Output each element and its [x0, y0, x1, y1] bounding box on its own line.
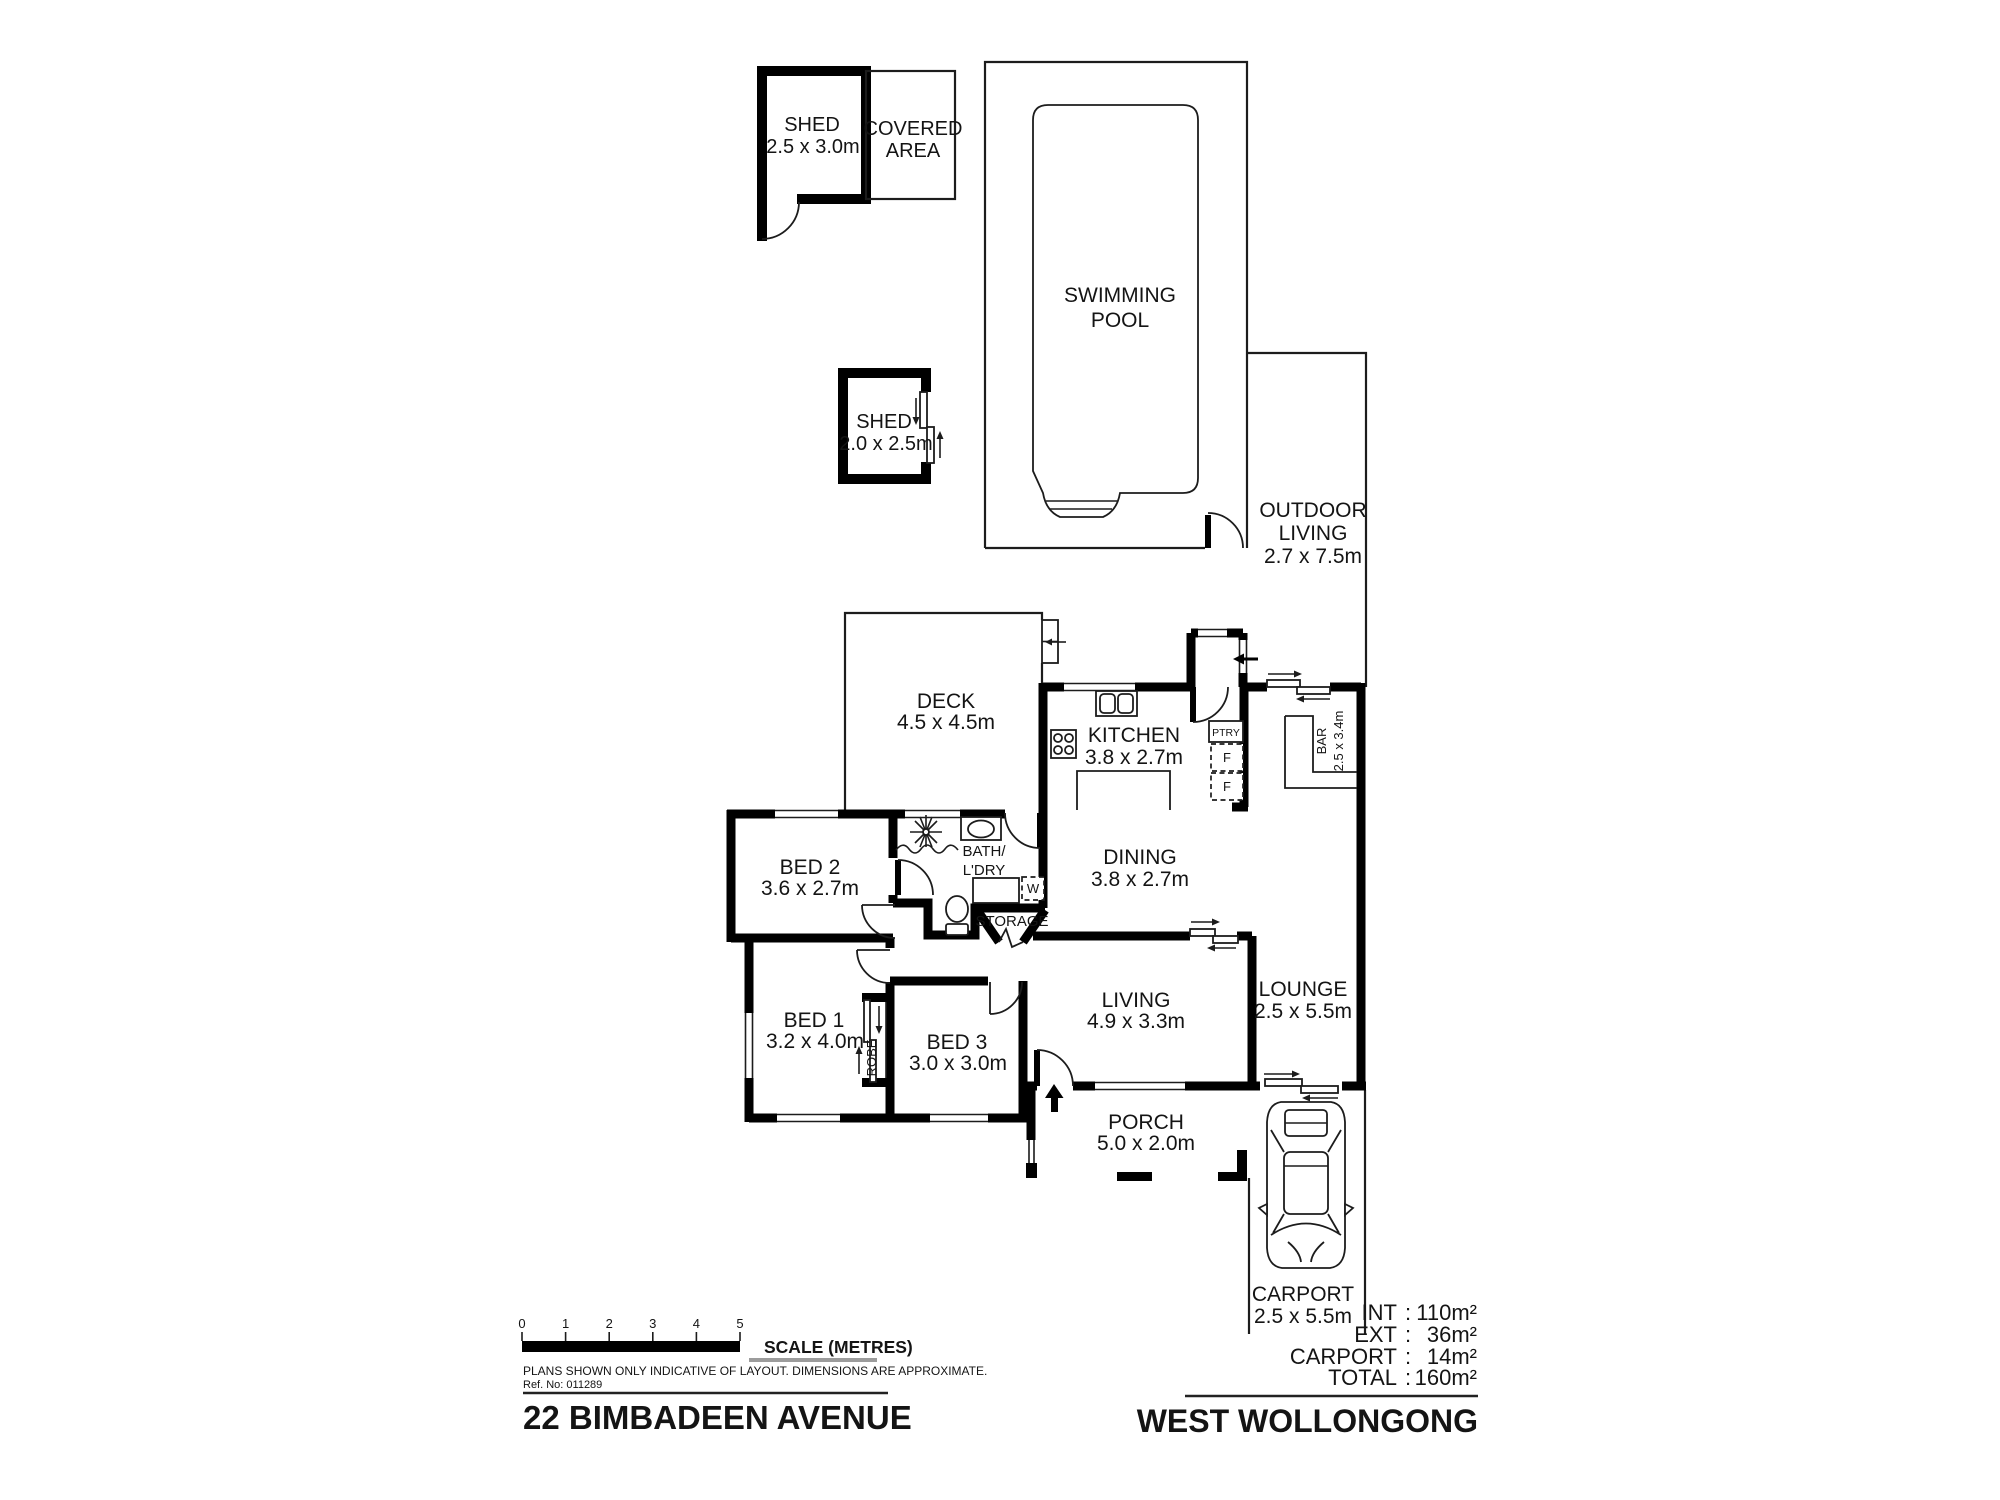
lounge-dims: 2.5 x 5.5m [1254, 1000, 1352, 1023]
outdoor-living-label-2: LIVING [1279, 522, 1348, 545]
entry-vestibule-door [1193, 687, 1228, 722]
scale-tick-2: 2 [606, 1316, 613, 1331]
robe-slider-panel [864, 1000, 870, 1042]
outdoor-living-dims: 2.7 x 7.5m [1264, 545, 1362, 568]
dining-label: DINING [1103, 846, 1177, 869]
laundry-tub [973, 878, 1019, 903]
bed1-dims: 3.2 x 4.0m [766, 1030, 864, 1053]
bed2-label: BED 2 [780, 856, 841, 879]
bed3-label: BED 3 [927, 1031, 988, 1054]
shed1-label: SHED [784, 114, 840, 136]
shed2-label: SHED [856, 411, 912, 433]
dining-dims: 3.8 x 2.7m [1091, 868, 1189, 891]
carport-dims: 2.5 x 5.5m [1254, 1305, 1352, 1328]
pantry-label: PTRY [1212, 727, 1240, 739]
bar-label: BAR [1314, 728, 1329, 755]
bed1-label: BED 1 [784, 1009, 845, 1032]
pool-label-2: POOL [1091, 309, 1149, 332]
porch-post [1117, 1172, 1152, 1181]
fridge-label-top: F [1223, 750, 1231, 765]
porch-label: PORCH [1108, 1111, 1184, 1134]
front-door [1037, 1050, 1073, 1086]
bed2-dims: 3.6 x 2.7m [761, 877, 859, 900]
bed1-door [857, 950, 890, 983]
pool-gate-arc [1208, 513, 1243, 548]
shower-icon [896, 815, 958, 853]
washer-label: W [1027, 881, 1040, 896]
bath-label-1: BATH/ [962, 843, 1006, 860]
lounge-label: LOUNGE [1259, 978, 1348, 1001]
pool-gate-leaf [1205, 515, 1211, 548]
ref-no-text: Ref. No: 011289 [523, 1379, 602, 1391]
scale-label-underline [749, 1358, 877, 1362]
living-dims: 4.9 x 3.3m [1087, 1010, 1185, 1033]
bar-dims: 2.5 x 3.4m [1331, 711, 1346, 772]
scale-tick-3: 3 [649, 1316, 656, 1331]
floor-plan-canvas: SHED 2.5 x 3.0m COVERED AREA SWIMMING PO… [0, 0, 2000, 1500]
kitchen-dims: 3.8 x 2.7m [1085, 746, 1183, 769]
shed2-slider-panel [920, 392, 927, 428]
floor-plan-page: SHED 2.5 x 3.0m COVERED AREA SWIMMING PO… [0, 0, 2000, 1500]
porch-corner-post [1218, 1150, 1247, 1181]
bath-door [898, 860, 933, 895]
disclaimer-text: PLANS SHOWN ONLY INDICATIVE OF LAYOUT. D… [523, 1364, 987, 1378]
shed1-dims: 2.5 x 3.0m [766, 136, 859, 158]
area-colon: : [1405, 1365, 1411, 1390]
deck-dims: 4.5 x 4.5m [897, 711, 995, 734]
sink-icon [1096, 691, 1137, 716]
shower-curtain [896, 845, 958, 853]
outdoor-living-label-1: OUTDOOR [1259, 499, 1366, 522]
house-walls [727, 633, 1366, 1181]
covered-area-label-1: COVERED [864, 118, 963, 140]
area-label: TOTAL [1328, 1365, 1397, 1390]
bath-label-2: L'DRY [963, 862, 1006, 879]
bed3-dims: 3.0 x 3.0m [909, 1052, 1007, 1075]
scale-tick-4: 4 [693, 1316, 700, 1331]
scale-bar: 0 1 2 3 4 5 SCALE (METRES) [518, 1316, 912, 1362]
kitchen-bench [1077, 771, 1170, 810]
kitchen-label: KITCHEN [1088, 724, 1180, 747]
robe-label: ROBE [864, 1039, 879, 1076]
carport-label: CARPORT [1252, 1283, 1354, 1306]
storage-door-squiggle [999, 929, 1023, 947]
porch-screen [1029, 1140, 1034, 1163]
porch-post [1026, 1163, 1037, 1178]
area-value: 160m² [1415, 1365, 1477, 1390]
toilet-icon [946, 896, 968, 935]
living-label: LIVING [1102, 989, 1171, 1012]
porch-dims: 5.0 x 2.0m [1097, 1132, 1195, 1155]
deck-laundry-door [1005, 813, 1040, 848]
suburb-text: WEST WOLLONGONG [1137, 1403, 1478, 1439]
scale-tick-0: 0 [518, 1316, 525, 1331]
shed2-dims: 2.0 x 2.5m [839, 433, 932, 455]
car-icon [1259, 1102, 1353, 1268]
front-entry-arrow [1051, 1097, 1058, 1112]
scale-tick-1: 1 [562, 1316, 569, 1331]
stove-icon [1051, 730, 1076, 758]
fridge-label-bottom: F [1223, 779, 1231, 794]
bed2-door [862, 905, 895, 938]
covered-area-label-2: AREA [886, 140, 941, 162]
scale-tick-5: 5 [736, 1316, 743, 1331]
scale-label: SCALE (METRES) [764, 1337, 913, 1357]
deck-label: DECK [917, 690, 975, 713]
address-text: 22 BIMBADEEN AVENUE [523, 1399, 912, 1436]
vanity-basin-icon [961, 817, 1001, 840]
shed1-door-arc [762, 202, 799, 239]
pool-label-1: SWIMMING [1064, 284, 1176, 307]
bed3-door [990, 982, 1022, 1014]
storage-label: STORAGE [975, 913, 1048, 930]
